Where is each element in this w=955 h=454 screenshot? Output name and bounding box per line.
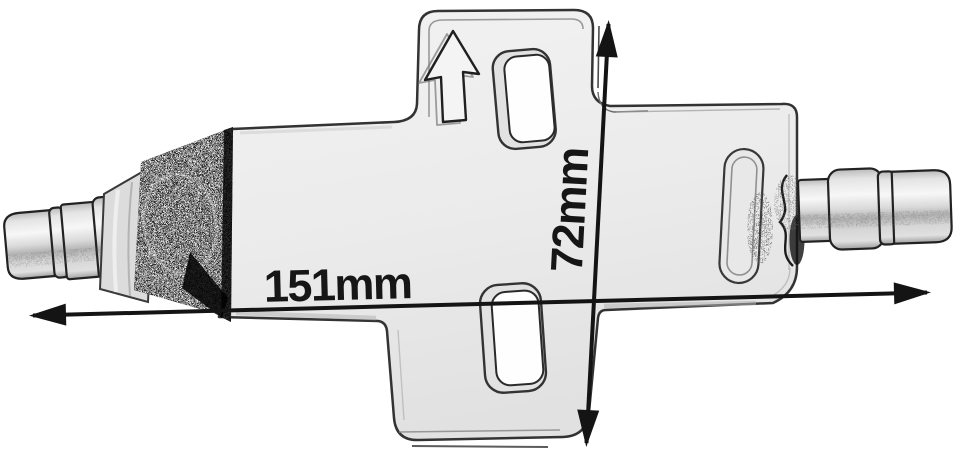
width-dimension-label: 151mm	[263, 257, 412, 312]
fuel-tap-illustration: 151mm 72mm	[0, 0, 955, 454]
product-dimension-diagram: 151mm 72mm	[0, 0, 955, 454]
sketch-grain-overlay	[0, 0, 955, 454]
height-dimension-label: 72mm	[541, 147, 598, 274]
